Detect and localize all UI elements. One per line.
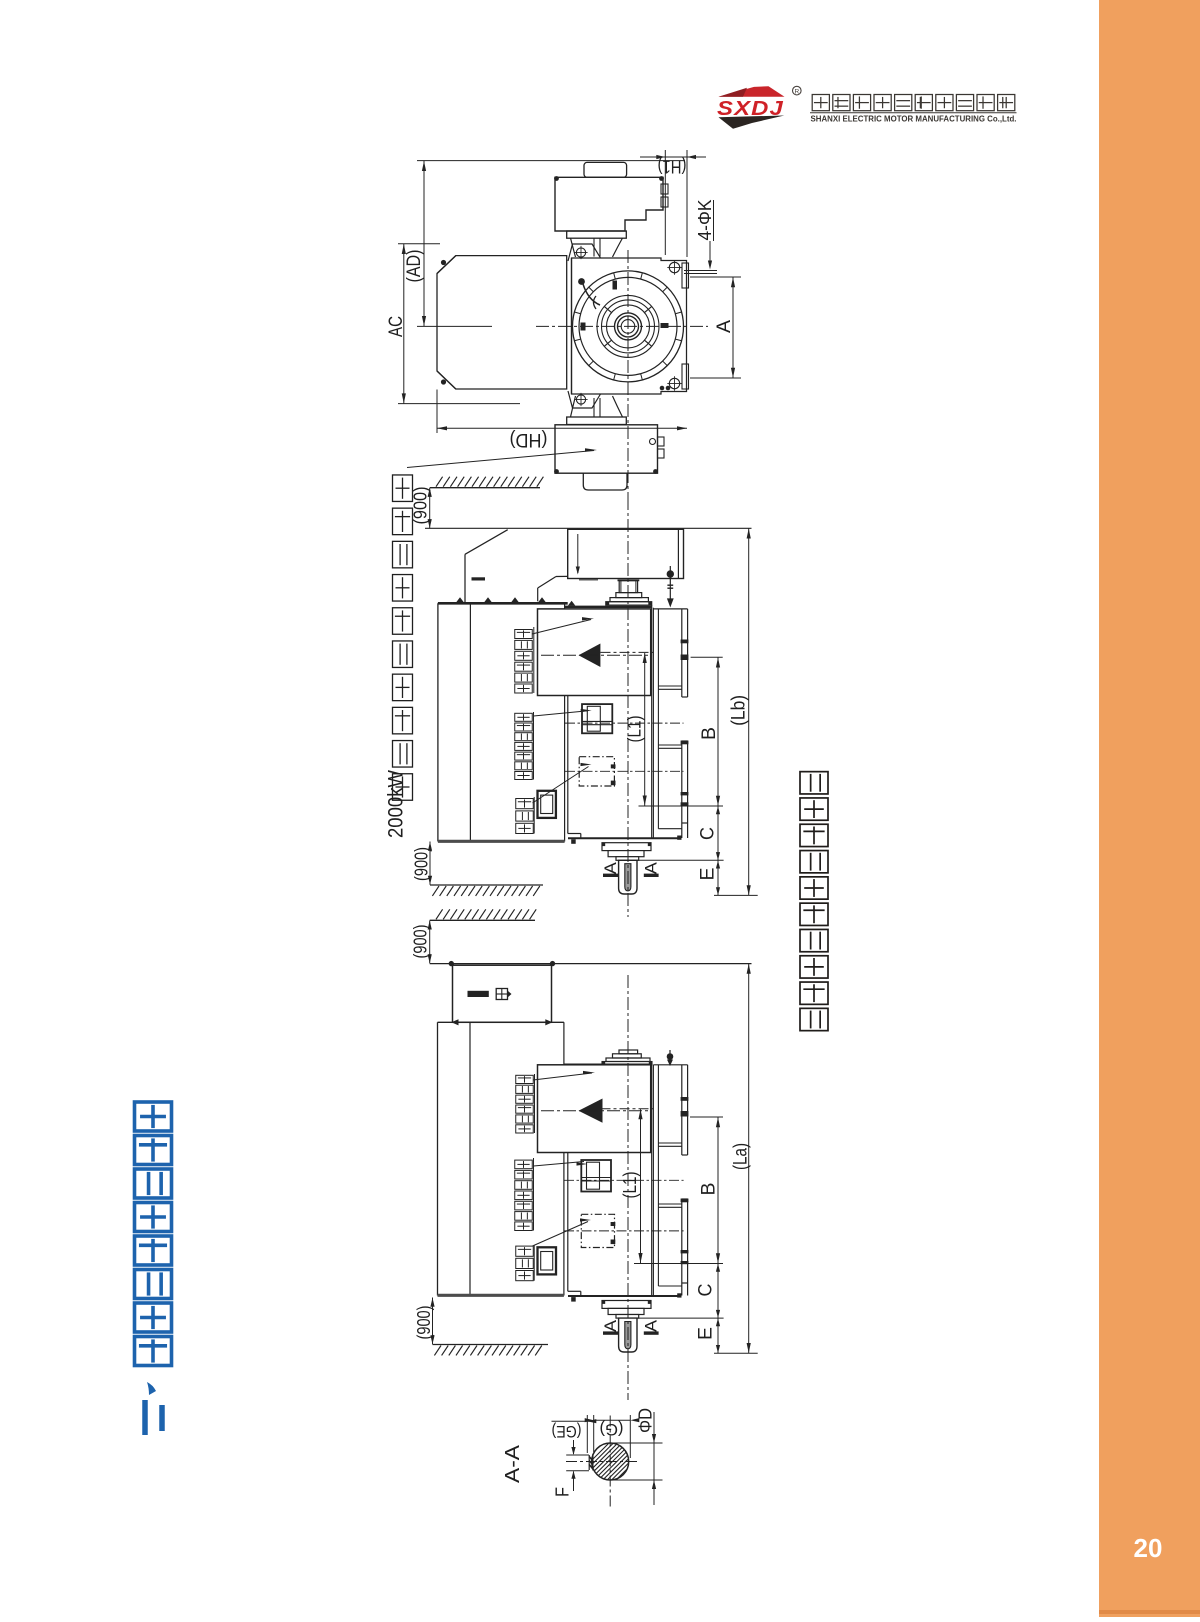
svg-text:(G): (G) <box>600 1420 624 1439</box>
svg-text:A: A <box>714 320 735 333</box>
svg-text:C: C <box>698 827 719 840</box>
svg-text:(HD): (HD) <box>510 429 548 450</box>
svg-text:F: F <box>553 1487 573 1497</box>
svg-text:(900): (900) <box>412 847 432 881</box>
svg-text:(L1): (L1) <box>625 716 645 743</box>
svg-text:B: B <box>699 1183 720 1196</box>
svg-text:(AD): (AD) <box>404 250 425 283</box>
svg-text:(La): (La) <box>731 1143 752 1170</box>
svg-text:A: A <box>601 1319 620 1332</box>
svg-text:20: 20 <box>1134 1533 1163 1563</box>
svg-text:(900): (900) <box>411 925 431 959</box>
svg-text:E: E <box>696 1327 717 1340</box>
svg-text:A-A: A-A <box>502 1444 524 1483</box>
svg-text:AC: AC <box>386 316 407 337</box>
svg-text:A: A <box>641 1319 660 1332</box>
svg-text:B: B <box>699 727 720 740</box>
svg-text:(900): (900) <box>414 1306 434 1340</box>
svg-text:ΦD: ΦD <box>636 1408 656 1433</box>
svg-text:(Lb): (Lb) <box>728 695 749 726</box>
svg-text:E: E <box>697 868 718 881</box>
svg-text:(H1): (H1) <box>658 157 687 177</box>
svg-text:R: R <box>794 89 799 96</box>
svg-text:2000kW: 2000kW <box>385 770 408 838</box>
svg-text:C: C <box>696 1284 717 1297</box>
svg-text:(L1): (L1) <box>620 1172 640 1199</box>
svg-text:(900): (900) <box>411 487 431 525</box>
svg-text:SHANXI ELECTRIC MOTOR MANUFACT: SHANXI ELECTRIC MOTOR MANUFACTURING Co.,… <box>811 114 1017 124</box>
svg-text:A: A <box>601 862 620 875</box>
svg-text:4-ΦK: 4-ΦK <box>695 200 715 241</box>
svg-text:(GE): (GE) <box>552 1422 582 1441</box>
svg-text:A: A <box>641 862 660 875</box>
